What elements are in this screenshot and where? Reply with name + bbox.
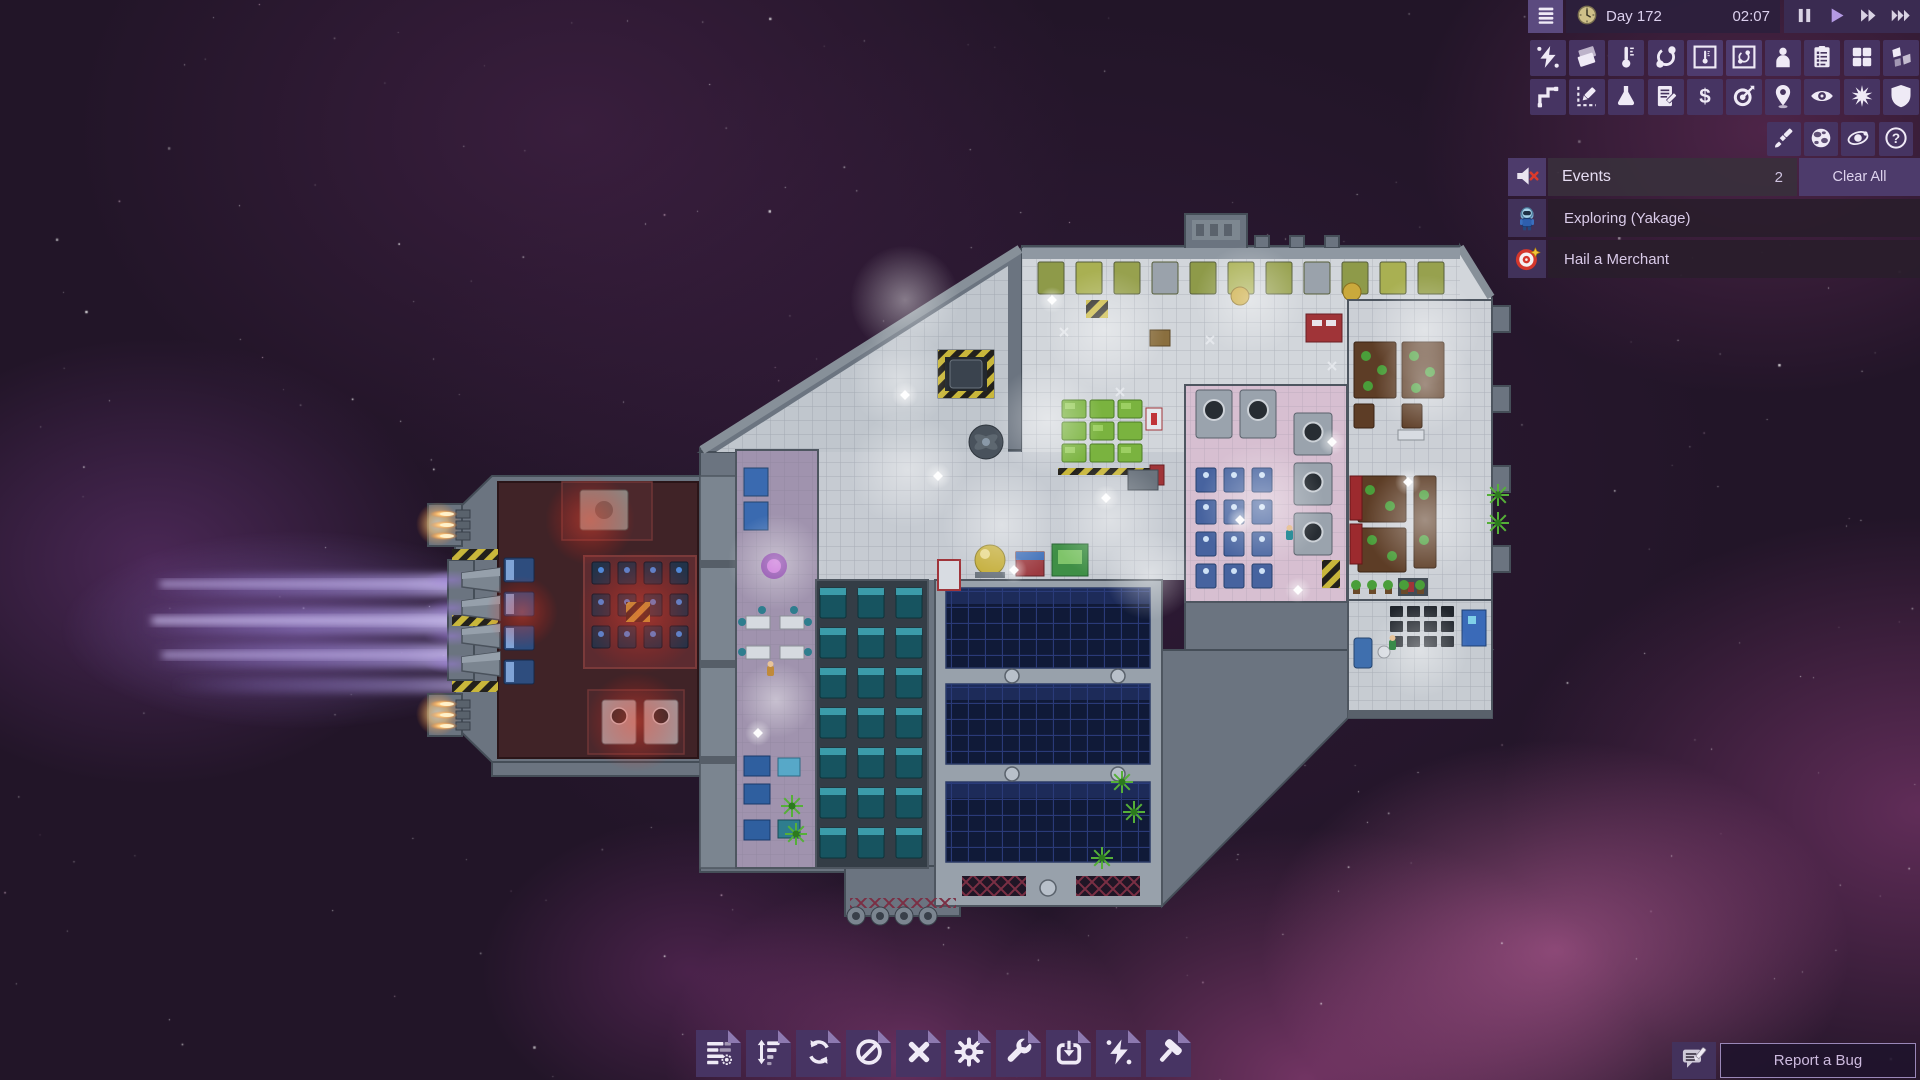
play-icon	[1826, 5, 1847, 29]
rotate-cycle-icon	[804, 1037, 834, 1070]
rotate-cycle-button[interactable]	[796, 1030, 841, 1077]
thermometer-button[interactable]	[1608, 40, 1644, 76]
power-bolt-button[interactable]	[1096, 1030, 1141, 1077]
power-bolt-icon	[1104, 1037, 1134, 1070]
missions-target-button[interactable]	[1726, 79, 1762, 115]
task-list-button[interactable]	[1804, 40, 1840, 76]
muted-speaker-icon	[1514, 163, 1540, 192]
manage-list-button[interactable]	[696, 1030, 741, 1077]
svg-text:?: ?	[1891, 130, 1899, 145]
overlay-toolbar-row-1	[1530, 40, 1919, 76]
fast-forward-button[interactable]	[1853, 3, 1883, 31]
thermometer-overlay-icon	[1692, 44, 1718, 73]
operations-gear-icon	[954, 1037, 984, 1070]
message-pencil-icon	[1680, 1045, 1708, 1076]
priority-sort-icon	[754, 1037, 784, 1070]
player-ship[interactable]	[416, 214, 1510, 925]
bottom-toolbar	[696, 1030, 1191, 1077]
clock-icon	[1576, 4, 1598, 30]
trade-dollar-button[interactable]: $	[1687, 79, 1723, 115]
help-button[interactable]: ?	[1879, 122, 1913, 156]
forbid-button[interactable]	[846, 1030, 891, 1077]
draft-plan-icon	[1574, 83, 1600, 112]
floor-tiles-button[interactable]	[1569, 40, 1605, 76]
rooms-grid-icon	[1849, 44, 1875, 73]
hull-breach-icon	[1888, 44, 1914, 73]
combat-burst-button[interactable]	[1844, 79, 1880, 115]
power-lightning-button[interactable]	[1530, 40, 1566, 76]
salvage-import-icon	[1054, 1037, 1084, 1070]
svg-text:$: $	[1699, 85, 1711, 108]
event-label[interactable]: Hail a Merchant	[1548, 240, 1920, 278]
playback-controls	[1784, 0, 1920, 33]
overlay-toolbar-row-3: ?	[1767, 122, 1913, 156]
report-bug-button[interactable]: Report a Bug	[1720, 1043, 1916, 1078]
fastest-forward-button[interactable]	[1885, 3, 1915, 31]
thermometer-icon	[1613, 44, 1639, 73]
repair-wrench-icon	[1004, 1037, 1034, 1070]
fast-forward-icon	[1858, 5, 1879, 29]
planet-button[interactable]	[1804, 122, 1838, 156]
events-panel: Events 2 Clear All Exploring (Yakage)Hai…	[1508, 158, 1920, 281]
event-row[interactable]: Hail a Merchant	[1508, 240, 1920, 278]
solar-panel-hall[interactable]	[935, 580, 1162, 906]
clear-all-button[interactable]: Clear All	[1799, 158, 1920, 196]
crew-button[interactable]	[1765, 40, 1801, 76]
hull-breach-button[interactable]	[1883, 40, 1919, 76]
play-button[interactable]	[1821, 3, 1851, 31]
mess-hall-room[interactable]	[736, 450, 818, 868]
help-icon: ?	[1884, 126, 1908, 153]
view-eye-button[interactable]	[1804, 79, 1840, 115]
priority-sort-button[interactable]	[746, 1030, 791, 1077]
gas-orbit-icon	[1653, 44, 1679, 73]
events-title: Events	[1562, 168, 1611, 186]
paint-brush-button[interactable]	[1767, 122, 1801, 156]
life-support-room[interactable]	[816, 580, 928, 868]
paint-brush-icon	[1772, 126, 1796, 153]
events-header: Events 2 Clear All	[1508, 158, 1920, 196]
mute-events-button[interactable]	[1508, 158, 1546, 196]
view-eye-icon	[1809, 83, 1835, 112]
operations-gear-button[interactable]	[946, 1030, 991, 1077]
salvage-import-button[interactable]	[1046, 1030, 1091, 1077]
floor-tiles-icon	[1574, 44, 1600, 73]
day-time-bar: Day 172 02:07	[1566, 0, 1780, 33]
events-count: 2	[1775, 169, 1783, 186]
thermometer-overlay-button[interactable]	[1687, 40, 1723, 76]
pause-button[interactable]	[1789, 3, 1819, 31]
astronaut-icon	[1508, 199, 1546, 237]
draft-plan-button[interactable]	[1569, 79, 1605, 115]
power-lightning-icon	[1535, 44, 1561, 73]
research-flask-icon	[1613, 83, 1639, 112]
shield-icon	[1888, 83, 1914, 112]
travel-pin-icon	[1770, 83, 1796, 112]
star-system-button[interactable]	[1841, 122, 1875, 156]
report-bug-panel: Report a Bug	[1672, 1042, 1916, 1079]
build-hammer-icon	[1154, 1037, 1184, 1070]
menu-icon	[1535, 4, 1557, 29]
manage-list-icon	[704, 1037, 734, 1070]
missions-target-icon	[1731, 83, 1757, 112]
pause-icon	[1794, 5, 1815, 29]
repair-wrench-button[interactable]	[996, 1030, 1041, 1077]
fastest-forward-icon	[1890, 5, 1911, 29]
rooms-grid-button[interactable]	[1844, 40, 1880, 76]
deconstruct-x-button[interactable]	[896, 1030, 941, 1077]
overlay-toolbar-row-2: $	[1530, 79, 1919, 115]
pipes-network-icon	[1535, 83, 1561, 112]
combat-burst-icon	[1849, 83, 1875, 112]
travel-pin-button[interactable]	[1765, 79, 1801, 115]
game-viewport: Day 172 02:07 $ ? Events 2 Clear All Exp…	[0, 0, 1920, 1080]
deconstruct-x-icon	[904, 1037, 934, 1070]
planet-icon	[1809, 126, 1833, 153]
menu-button[interactable]	[1528, 0, 1563, 33]
time-label: 02:07	[1732, 8, 1770, 25]
task-list-icon	[1809, 44, 1835, 73]
data-log-icon	[1653, 83, 1679, 112]
gas-overlay-icon	[1731, 44, 1757, 73]
merchant-target-icon	[1508, 240, 1546, 278]
pipes-network-button[interactable]	[1530, 79, 1566, 115]
message-pencil-icon-button[interactable]	[1672, 1042, 1716, 1079]
trade-dollar-icon: $	[1692, 83, 1718, 112]
star-system-icon	[1846, 126, 1870, 153]
day-label: Day 172	[1606, 8, 1662, 25]
crew-icon	[1770, 44, 1796, 73]
gas-overlay-button[interactable]	[1726, 40, 1762, 76]
research-flask-button[interactable]	[1608, 79, 1644, 115]
gas-orbit-button[interactable]	[1648, 40, 1684, 76]
build-hammer-button[interactable]	[1146, 1030, 1191, 1077]
event-row[interactable]: Exploring (Yakage)	[1508, 199, 1920, 237]
events-title-bar: Events 2	[1548, 158, 1797, 196]
forbid-icon	[854, 1037, 884, 1070]
shield-button[interactable]	[1883, 79, 1919, 115]
event-label[interactable]: Exploring (Yakage)	[1548, 199, 1920, 237]
data-log-button[interactable]	[1648, 79, 1684, 115]
